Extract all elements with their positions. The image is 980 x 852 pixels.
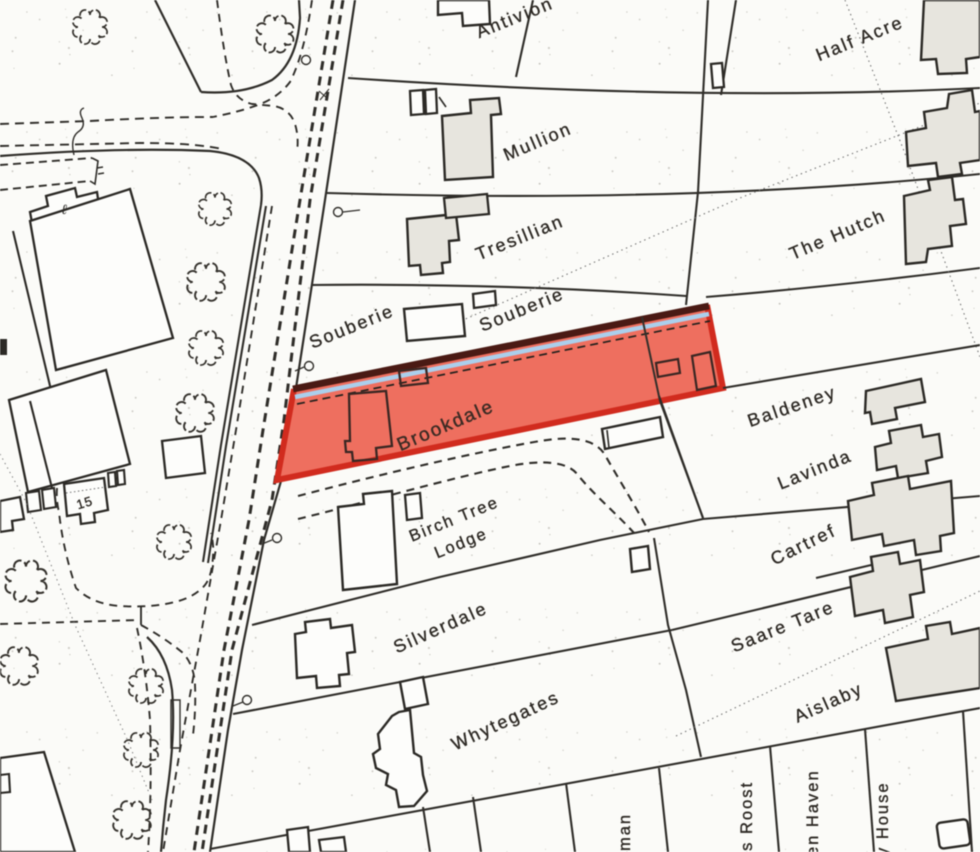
svg-text:en Haven: en Haven [804, 769, 822, 852]
svg-text:ℓ: ℓ [61, 203, 67, 218]
svg-text:man: man [616, 813, 634, 851]
svg-text:y House: y House [874, 781, 892, 852]
svg-text:'s Roost: 's Roost [738, 781, 756, 852]
